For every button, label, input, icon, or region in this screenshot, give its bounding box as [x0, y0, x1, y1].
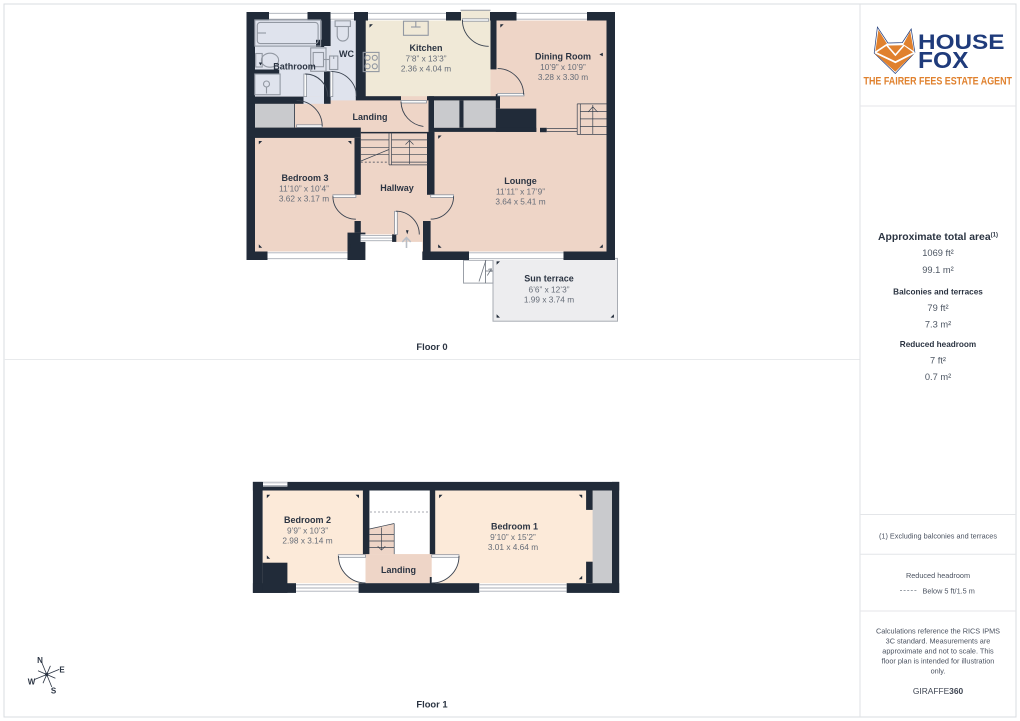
svg-text:3.28 x 3.30 m: 3.28 x 3.30 m	[538, 72, 588, 82]
svg-text:Approximate total area(1): Approximate total area(1)	[878, 232, 998, 243]
svg-text:3C standard. Measurements are: 3C standard. Measurements are	[886, 637, 991, 646]
svg-text:Bedroom 1: Bedroom 1	[491, 521, 538, 531]
svg-text:9’9” x 10’3”: 9’9” x 10’3”	[287, 526, 328, 536]
svg-text:1069 ft²: 1069 ft²	[922, 248, 954, 258]
svg-text:9’10” x 15’2”: 9’10” x 15’2”	[490, 532, 536, 542]
svg-text:E: E	[59, 666, 65, 675]
svg-text:N: N	[37, 656, 43, 665]
svg-text:floor plan is intended for ill: floor plan is intended for illustration	[882, 657, 995, 666]
svg-text:2.36 x 4.04 m: 2.36 x 4.04 m	[401, 63, 451, 73]
svg-text:Reduced headroom: Reduced headroom	[906, 571, 970, 580]
svg-text:Balconies and terraces: Balconies and terraces	[893, 288, 983, 297]
svg-text:GIRAFFE360: GIRAFFE360	[913, 686, 964, 696]
svg-text:approximate and not to scale.: approximate and not to scale. This	[882, 647, 994, 656]
svg-text:Floor 0: Floor 0	[416, 341, 447, 352]
svg-text:Lounge: Lounge	[504, 176, 537, 186]
svg-text:79 ft²: 79 ft²	[927, 303, 948, 313]
svg-text:W: W	[28, 678, 36, 687]
svg-text:1.99 x 3.74 m: 1.99 x 3.74 m	[524, 295, 574, 305]
svg-text:Landing: Landing	[381, 565, 416, 575]
svg-text:2.98 x 3.14 m: 2.98 x 3.14 m	[282, 536, 332, 546]
svg-text:Reduced headroom: Reduced headroom	[900, 340, 976, 349]
svg-text:Dining Room: Dining Room	[535, 51, 591, 61]
svg-text:7.3 m²: 7.3 m²	[925, 320, 951, 330]
svg-text:only.: only.	[931, 667, 946, 676]
svg-text:3.62 x 3.17 m: 3.62 x 3.17 m	[279, 194, 329, 204]
svg-text:Bathroom: Bathroom	[273, 62, 316, 72]
svg-text:10’9” x 10’9”: 10’9” x 10’9”	[540, 62, 586, 72]
svg-text:THE FAIRER FEES ESTATE AGENT: THE FAIRER FEES ESTATE AGENT	[864, 76, 1013, 88]
svg-text:7 ft²: 7 ft²	[930, 356, 946, 366]
svg-text:Hallway: Hallway	[380, 183, 414, 193]
svg-text:99.1 m²: 99.1 m²	[922, 265, 954, 275]
svg-text:(1) Excluding balconies and te: (1) Excluding balconies and terraces	[879, 532, 997, 541]
svg-text:Below 5 ft/1.5 m: Below 5 ft/1.5 m	[923, 586, 975, 595]
svg-text:Landing: Landing	[353, 112, 388, 122]
svg-text:Calculations reference the RIC: Calculations reference the RICS IPMS	[876, 627, 1000, 636]
svg-text:S: S	[51, 687, 57, 696]
svg-text:FOX: FOX	[918, 47, 969, 73]
svg-text:11’11” x 17’9”: 11’11” x 17’9”	[496, 187, 545, 197]
svg-text:3.01 x 4.64 m: 3.01 x 4.64 m	[488, 542, 538, 552]
svg-text:Sun terrace: Sun terrace	[524, 273, 574, 283]
svg-text:0.7 m²: 0.7 m²	[925, 372, 951, 382]
svg-text:Floor 1: Floor 1	[416, 699, 447, 710]
svg-text:3.64 x 5.41 m: 3.64 x 5.41 m	[495, 197, 545, 207]
svg-text:7’8” x 13’3”: 7’8” x 13’3”	[405, 53, 446, 63]
svg-text:Kitchen: Kitchen	[409, 43, 442, 53]
svg-text:Bedroom 2: Bedroom 2	[284, 515, 331, 525]
svg-text:WC: WC	[339, 49, 354, 59]
svg-text:Bedroom 3: Bedroom 3	[281, 173, 328, 183]
svg-text:6’6” x 12’3”: 6’6” x 12’3”	[528, 285, 569, 295]
svg-text:11’10” x 10’4”: 11’10” x 10’4”	[279, 184, 329, 194]
